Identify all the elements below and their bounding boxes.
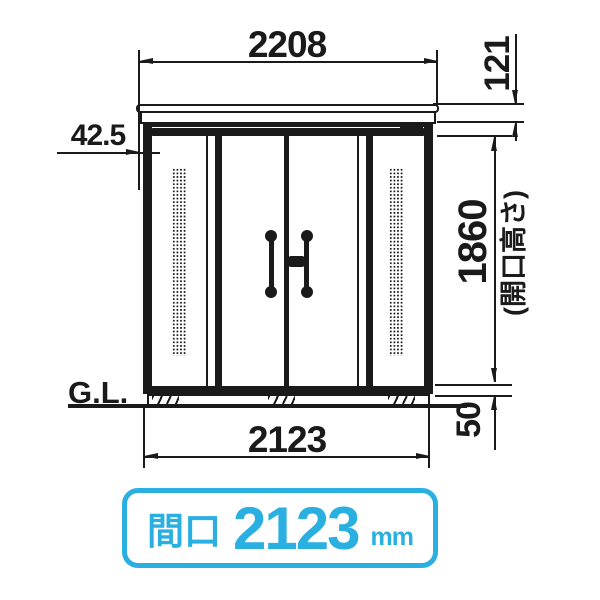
dim-opening-height-note: (開口高さ) [498, 168, 530, 338]
roof-fascia [140, 111, 436, 124]
dimension-line [57, 152, 160, 154]
handle-knob [301, 286, 313, 298]
arrow-left-icon [139, 58, 153, 64]
bottom-rail [150, 386, 426, 394]
badge-unit-label: mm [371, 523, 413, 552]
arrow-right-icon [416, 453, 430, 459]
vent-left [172, 168, 186, 356]
dim-eave-offset-label: 42.5 [52, 121, 144, 151]
badge-frontage-label: 間口 [147, 501, 221, 555]
dim-body-width-label: 2123 [212, 421, 362, 458]
extension-line [435, 384, 512, 386]
extension-line [436, 50, 438, 104]
spec-badge: 間口 2123 mm [122, 488, 438, 568]
badge-frontage-value: 2123 [233, 494, 358, 563]
arrow-up-icon [491, 396, 497, 410]
panel-divider-thin-right [357, 136, 359, 386]
lock-tab [288, 256, 305, 267]
handle-knob [265, 230, 277, 242]
door-stile-left [215, 136, 222, 386]
extension-line [138, 104, 140, 190]
arrow-up-icon [512, 123, 518, 137]
extension-line [138, 50, 140, 104]
panel-divider-thin-left [206, 136, 208, 386]
dim-top-width-label: 2208 [212, 26, 362, 63]
dim-base-height-label: 50 [450, 390, 488, 450]
arrow-left-icon [144, 453, 158, 459]
vent-right [389, 168, 404, 356]
extension-line [428, 408, 430, 468]
elevation-drawing: 2208 121 42.5 1860 (開口高さ) 50 G.L. 2123 間… [0, 0, 600, 600]
top-rail [150, 128, 426, 136]
handle-knob [301, 230, 313, 242]
handle-knob [265, 286, 277, 298]
dim-opening-height-label: 1860 [451, 187, 495, 297]
extension-line [437, 135, 512, 137]
extension-line [433, 103, 524, 105]
arrow-down-icon [491, 368, 497, 382]
right-wall [424, 124, 433, 394]
arrow-down-icon [512, 90, 518, 104]
arrow-up-icon [491, 137, 497, 151]
left-wall [143, 124, 152, 394]
ground-line-label: G.L. [68, 377, 128, 408]
extension-line [437, 121, 524, 123]
dim-roof-height-label: 121 [479, 24, 515, 104]
door-stile-right [366, 136, 373, 386]
door-handle-left [269, 234, 274, 294]
door-lock-detail [400, 123, 423, 134]
extension-line [143, 408, 145, 468]
dimension-line [139, 61, 438, 63]
